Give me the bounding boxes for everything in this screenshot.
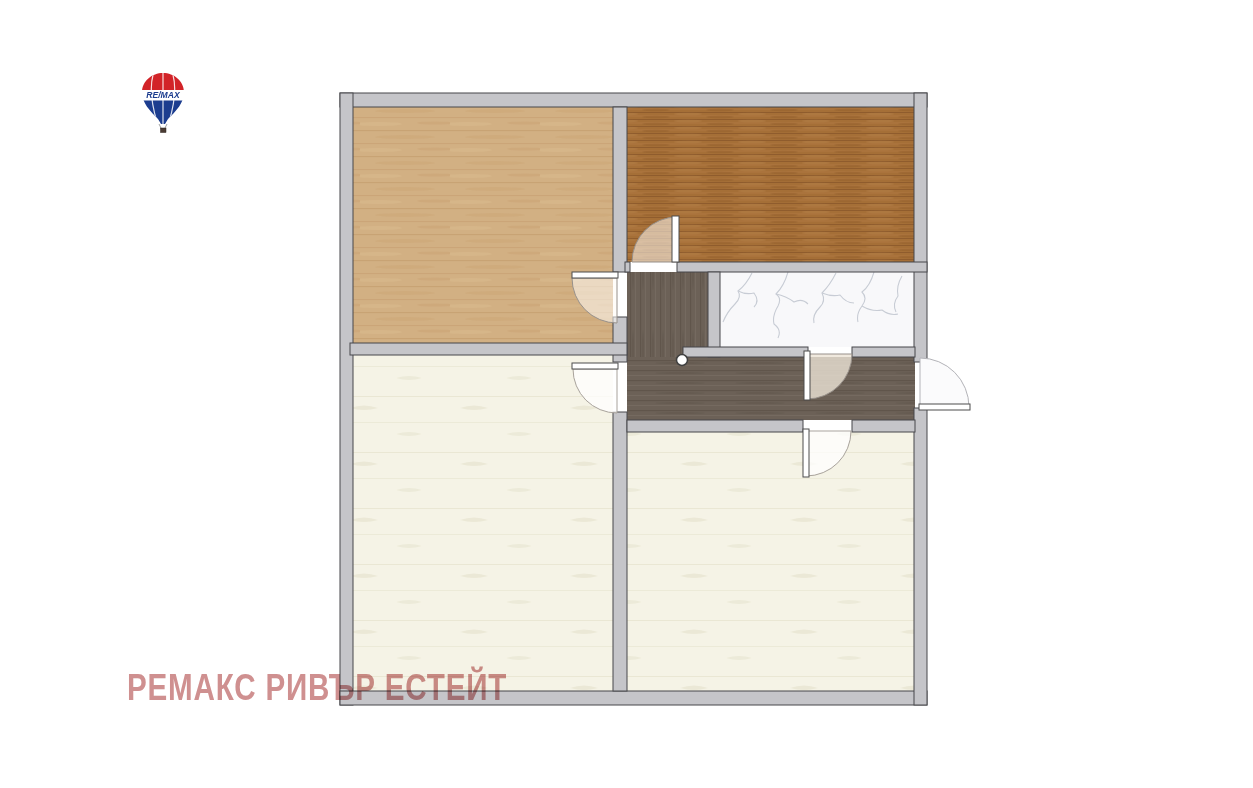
wall-segment <box>340 93 353 705</box>
room-floor-top-left <box>353 107 613 343</box>
hallway-floor-horizontal <box>627 357 915 420</box>
door-swing-entrance <box>919 358 970 410</box>
floors <box>353 107 915 691</box>
wall-segment <box>914 93 927 362</box>
wall-segment <box>340 93 927 107</box>
door-knob <box>677 355 688 366</box>
room-floor-bottom-right <box>627 432 915 691</box>
wall-segment <box>613 107 627 272</box>
floor-plan-page: RE/MAX РЕМАКС РИВЪР ЕСТЕЙТ <box>0 0 1253 788</box>
hallway-floor-vertical <box>627 272 708 357</box>
wall-segment <box>708 272 720 357</box>
wall-segment <box>350 343 627 355</box>
remax-balloon-logo: RE/MAX <box>137 72 189 136</box>
wall-segment <box>627 420 803 432</box>
wall-segment <box>852 420 915 432</box>
remax-logo-label: RE/MAX <box>146 90 181 100</box>
room-floor-bottom-left <box>353 355 613 691</box>
wall-segment <box>613 412 627 691</box>
wall-segment <box>914 408 927 705</box>
agency-watermark: РЕМАКС РИВЪР ЕСТЕЙТ <box>127 669 507 706</box>
balloon-basket <box>159 124 167 133</box>
wall-segment <box>852 347 915 357</box>
wall-segment <box>677 262 927 272</box>
wall-segment <box>625 262 630 272</box>
wall-segment <box>683 347 808 357</box>
bathroom-floor-marble <box>720 272 915 347</box>
